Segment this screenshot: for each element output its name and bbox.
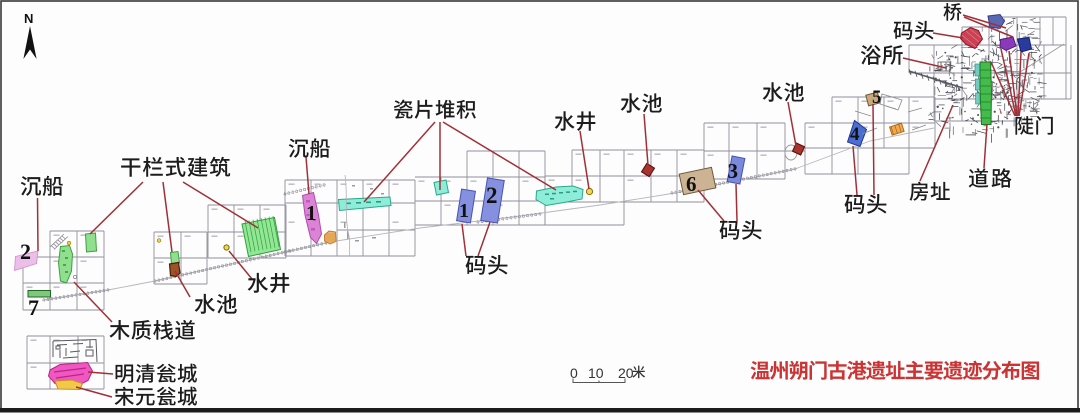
- svg-text:N: N: [24, 11, 33, 26]
- svg-text:10: 10: [588, 365, 604, 381]
- svg-text:2: 2: [486, 183, 498, 208]
- svg-text:1: 1: [306, 201, 317, 225]
- svg-text:20: 20: [618, 365, 634, 381]
- svg-text:4: 4: [850, 124, 860, 145]
- svg-text:0: 0: [570, 365, 578, 381]
- svg-text:3: 3: [728, 159, 739, 183]
- svg-text:1: 1: [459, 200, 469, 222]
- svg-text:7: 7: [28, 295, 39, 320]
- svg-text:2: 2: [20, 239, 31, 264]
- svg-text:6: 6: [686, 172, 697, 196]
